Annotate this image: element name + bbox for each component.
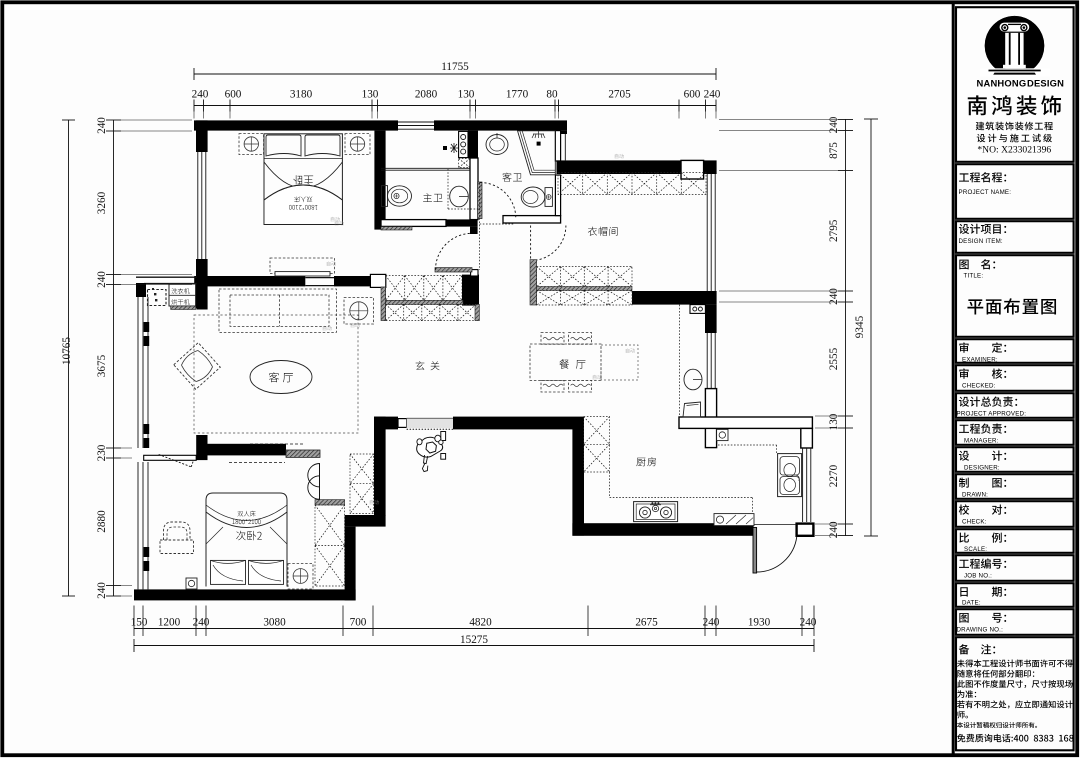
svg-text:DESIGN ITEM:: DESIGN ITEM: <box>959 238 1003 245</box>
svg-text:240: 240 <box>704 89 721 101</box>
svg-text:CHECKED:: CHECKED: <box>962 383 996 390</box>
svg-text:240: 240 <box>96 271 108 288</box>
svg-text:DATE:: DATE: <box>962 600 981 607</box>
svg-text:600: 600 <box>225 89 242 101</box>
svg-text:4820: 4820 <box>469 617 492 629</box>
svg-text:2555: 2555 <box>828 347 840 370</box>
svg-text:EXAMINER:: EXAMINER: <box>962 357 998 364</box>
svg-text:80: 80 <box>546 89 558 101</box>
svg-text:3675: 3675 <box>96 354 108 377</box>
svg-text:11755: 11755 <box>441 61 469 73</box>
svg-text:240: 240 <box>192 89 209 101</box>
svg-text:10765: 10765 <box>61 337 73 365</box>
svg-text:700: 700 <box>350 617 367 629</box>
svg-text:240: 240 <box>800 617 817 629</box>
svg-text:150: 150 <box>131 617 148 629</box>
svg-text:PROJECT APPROVED:: PROJECT APPROVED: <box>957 411 1027 418</box>
svg-text:2880: 2880 <box>96 510 108 533</box>
svg-text:1770: 1770 <box>506 89 529 101</box>
svg-text:TITLE:: TITLE: <box>964 273 984 280</box>
svg-text:JOB NO.:: JOB NO.: <box>964 573 992 580</box>
svg-text:230: 230 <box>96 444 108 461</box>
svg-text:240: 240 <box>828 521 840 538</box>
svg-text:DESIGNER:: DESIGNER: <box>964 465 1000 472</box>
svg-text:PROJECT NAME:: PROJECT NAME: <box>959 189 1012 196</box>
svg-text:600: 600 <box>684 89 701 101</box>
svg-text:3260: 3260 <box>96 191 108 214</box>
svg-text:240: 240 <box>193 617 210 629</box>
svg-text:240: 240 <box>828 288 840 305</box>
svg-text:3180: 3180 <box>290 89 313 101</box>
svg-text:1930: 1930 <box>748 617 771 629</box>
svg-text:NANHONG: NANHONG <box>977 78 1027 89</box>
svg-text:15275: 15275 <box>460 634 488 646</box>
svg-text:SCALE:: SCALE: <box>964 546 987 553</box>
svg-text:240: 240 <box>828 116 840 133</box>
svg-text:DESIGN: DESIGN <box>1027 78 1064 89</box>
svg-text:130: 130 <box>458 89 475 101</box>
svg-text:130: 130 <box>828 413 840 430</box>
svg-text:240: 240 <box>96 117 108 134</box>
svg-text:2705: 2705 <box>608 89 631 101</box>
svg-text:2270: 2270 <box>828 464 840 487</box>
svg-text:2795: 2795 <box>828 219 840 242</box>
svg-text:240: 240 <box>703 617 720 629</box>
svg-text:2080: 2080 <box>415 89 438 101</box>
svg-text:DRAWING NO.:: DRAWING NO.: <box>957 627 1004 634</box>
svg-text:2675: 2675 <box>635 617 658 629</box>
svg-text:*NO: X233021396: *NO: X233021396 <box>977 145 1051 156</box>
svg-text:875: 875 <box>828 142 840 159</box>
svg-text:9345: 9345 <box>854 315 866 338</box>
svg-text:130: 130 <box>362 89 379 101</box>
svg-text:3080: 3080 <box>263 617 286 629</box>
svg-text:CHECK:: CHECK: <box>962 519 987 526</box>
svg-text:240: 240 <box>96 582 108 599</box>
svg-text:MANAGER:: MANAGER: <box>964 438 999 445</box>
svg-text:DRAWN:: DRAWN: <box>962 492 988 499</box>
svg-text:1200: 1200 <box>158 617 181 629</box>
